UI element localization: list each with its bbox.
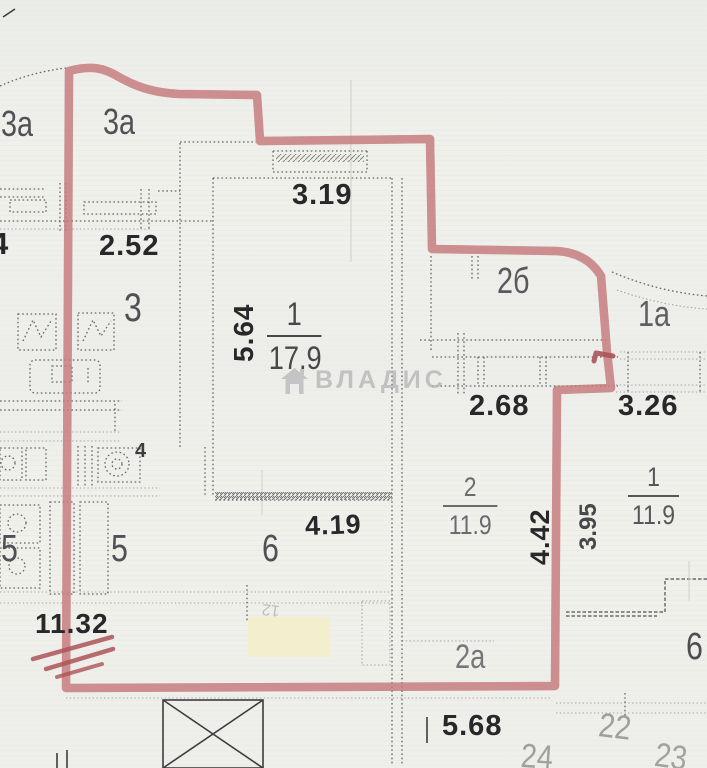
room-label-2a: 2а — [455, 640, 485, 674]
room-label-5-right: 5 — [111, 530, 128, 568]
dim-11-32: 11.32 — [35, 610, 109, 638]
dim-5-64: 5.64 — [230, 304, 258, 363]
dim-4-42: 4.42 — [527, 508, 554, 565]
room-label-5-left: 5 — [1, 530, 18, 568]
dim-3-26: 3.26 — [618, 392, 678, 421]
room-label-4: 4 — [135, 441, 146, 461]
dim-5-68: 5.68 — [442, 712, 502, 741]
dim-edge-fragment: 4 — [0, 228, 9, 259]
room-2-fraction: 2 11.9 — [443, 472, 497, 541]
room-1-area: 17.9 — [267, 335, 321, 377]
room-label-1a: 1а — [638, 296, 670, 332]
room-label-3a-right: 3а — [103, 104, 135, 140]
room-label-3a-left: 3а — [1, 106, 33, 142]
room-label-2b: 2б — [497, 263, 530, 299]
dim-3-95: 3.95 — [577, 503, 601, 550]
unit-label-24: 24 — [520, 739, 554, 768]
room-1-number: 1 — [267, 296, 321, 335]
room-2-area: 11.9 — [443, 505, 497, 541]
watermark-text: ВЛАДИС — [315, 366, 447, 395]
dim-2-52: 2.52 — [99, 232, 159, 261]
bleedthrough-mark: 12 — [261, 600, 281, 618]
room-label-3: 3 — [124, 288, 142, 328]
dim-4-19: 4.19 — [305, 511, 362, 540]
dim-3-19: 3.19 — [292, 181, 352, 210]
yellow-highlight-patch — [248, 617, 330, 657]
room-1-right-number: 1 — [628, 462, 679, 495]
room-1-right-fraction: 1 11.9 — [628, 462, 679, 531]
dim-2-68: 2.68 — [469, 392, 529, 421]
room-2-number: 2 — [443, 472, 497, 505]
unit-label-23: 23 — [653, 738, 690, 768]
room-label-6-right-edge: 6 — [686, 628, 703, 666]
red-hatch-marks — [33, 637, 113, 677]
room-1-fraction: 1 17.9 — [267, 296, 321, 377]
room-label-6: 6 — [262, 530, 279, 568]
floorplan-scan: ВЛАДИС 2.52 3.19 2.68 3.26 4.19 11.32 5.… — [0, 0, 707, 768]
room-1-right-area: 11.9 — [628, 495, 679, 531]
unit-label-22: 22 — [597, 708, 633, 746]
